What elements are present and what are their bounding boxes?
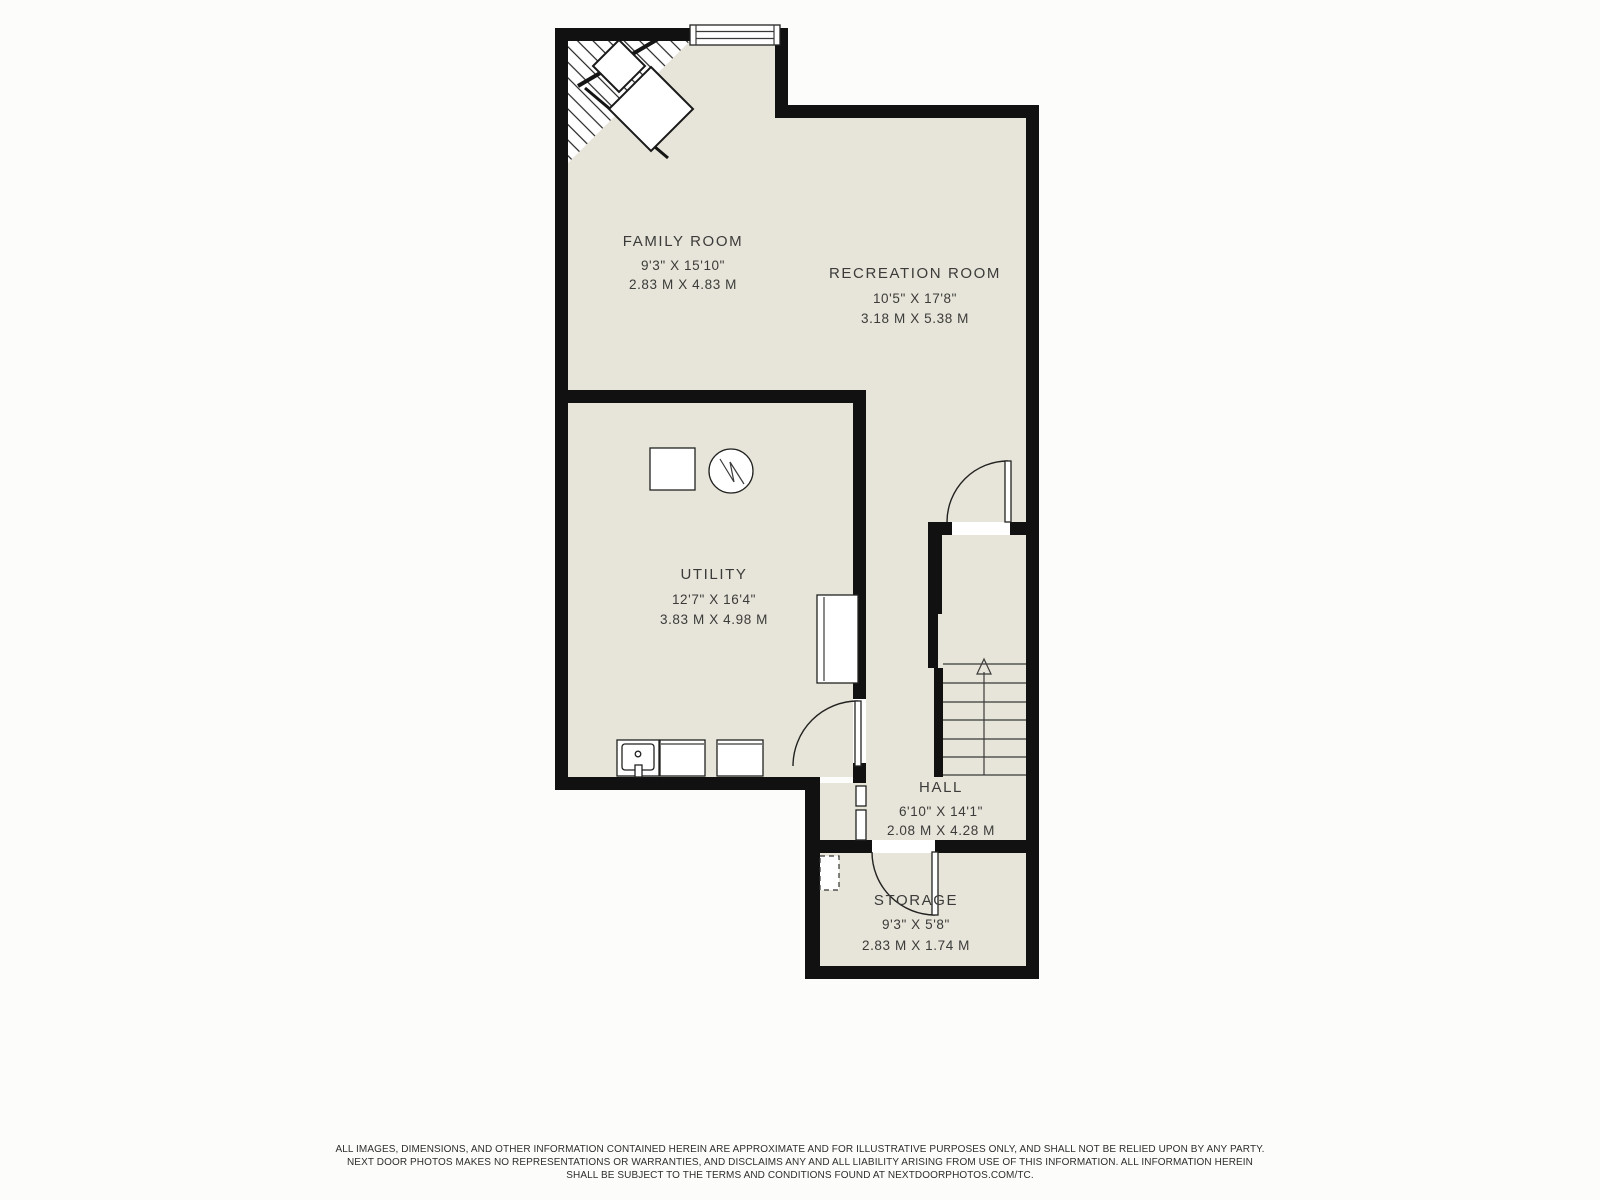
room-dimensions-metric: 2.83 M X 4.83 M [629,277,737,292]
dryer-icon [717,740,763,776]
door-leaf [855,701,861,766]
wall-segment [775,105,1039,118]
room-dimensions-imperial: 9'3" X 5'8" [882,917,950,932]
room-name: STORAGE [874,892,958,909]
washer-icon [660,740,705,776]
room-dimensions-metric: 2.08 M X 4.28 M [887,823,995,838]
room-name: UTILITY [680,566,747,583]
door-opening [952,522,1010,535]
room-dimensions-metric: 3.83 M X 4.98 M [660,612,768,627]
room-name: RECREATION ROOM [829,265,1001,282]
wall-segment [1010,522,1026,535]
wall-segment [934,668,943,777]
room-dimensions-imperial: 12'7" X 16'4" [672,592,756,607]
wall-segment [555,390,866,403]
door-leaf [1005,461,1011,522]
room-dimensions-imperial: 9'3" X 15'10" [641,258,725,273]
water-heater-icon [709,449,753,493]
window-icon [690,25,780,45]
wall-segment [1026,105,1039,979]
room-dimensions-imperial: 10'5" X 17'8" [873,291,957,306]
disclaimer-line: SHALL BE SUBJECT TO THE TERMS AND CONDIT… [566,1170,1034,1181]
wall-segment [805,840,872,853]
room-dimensions-metric: 2.83 M X 1.74 M [862,938,970,953]
tank-icon [817,595,858,683]
wall-segment [555,28,568,790]
electrical-panel-icon [650,448,695,490]
room-dimensions-metric: 3.18 M X 5.38 M [861,311,969,326]
room-name: FAMILY ROOM [623,233,743,250]
floorplan-canvas: FAMILY ROOM 9'3" X 15'10" 2.83 M X 4.83 … [0,0,1600,1200]
door-jamb [856,786,866,806]
room-name: HALL [919,779,963,796]
wall-segment [805,790,820,966]
wall-segment [928,614,938,668]
disclaimer-line: NEXT DOOR PHOTOS MAKES NO REPRESENTATION… [347,1157,1253,1168]
room-dimensions-imperial: 6'10" X 14'1" [899,804,983,819]
door-jamb [856,810,866,840]
wall-segment [555,777,820,790]
laundry-sink-icon [617,740,659,777]
disclaimer-line: ALL IMAGES, DIMENSIONS, AND OTHER INFORM… [335,1144,1264,1155]
door-opening [872,840,935,853]
wall-segment [928,522,942,614]
wall-segment [805,966,1039,979]
cased-opening-hall [856,786,866,840]
crawlspace-access-icon [820,856,839,890]
wall-segment [935,840,1026,853]
disclaimer: ALL IMAGES, DIMENSIONS, AND OTHER INFORM… [335,1144,1264,1181]
